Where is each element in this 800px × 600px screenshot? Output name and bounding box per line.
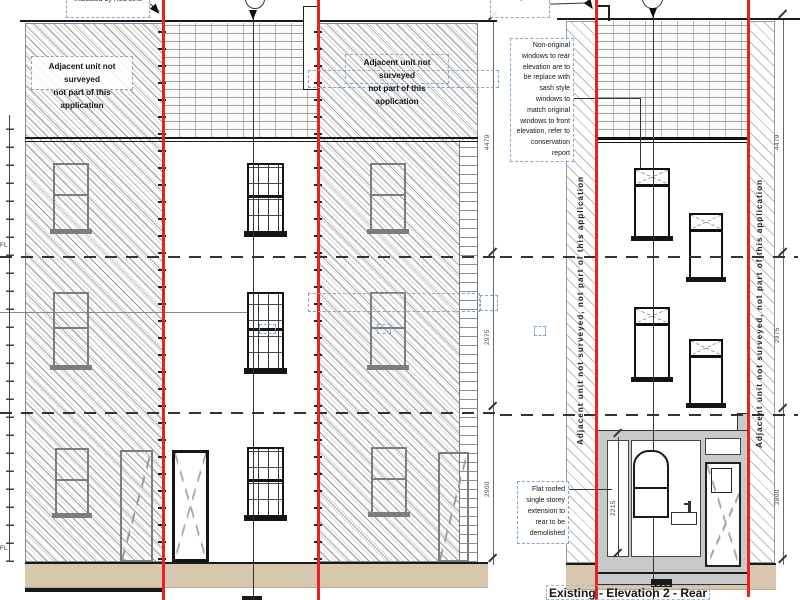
floor-level-dashed-line <box>0 412 498 414</box>
site-boundary-red-line <box>595 0 598 600</box>
floor-level-label: FL <box>0 242 8 249</box>
floor-level-dashed-line <box>500 256 798 258</box>
window-sill <box>367 365 409 370</box>
window-sill <box>367 229 409 234</box>
window-sill <box>244 368 287 374</box>
extension-door <box>705 462 741 567</box>
adjacent-unit-note: Adjacent unit not surveyednot part of th… <box>345 54 449 84</box>
level-marker-circle <box>245 0 265 9</box>
rear-window <box>689 339 723 405</box>
left-survey-tick-line <box>6 115 14 562</box>
window-top-sash <box>691 341 721 358</box>
rear-window <box>689 213 723 279</box>
adjacent-window <box>370 163 406 231</box>
dimension-label-lower: 2900 <box>484 481 491 497</box>
adjacent-note-line1: Adjacent unit not surveyed <box>364 58 431 80</box>
window-sill <box>50 229 92 234</box>
dimension-label-middle: 2975 <box>484 329 491 345</box>
front-centre-line <box>253 10 254 600</box>
window-top-sash <box>691 215 721 232</box>
adjacent-window <box>55 448 89 515</box>
front-roof-line <box>20 20 497 22</box>
front-brick-upper-band <box>163 23 318 139</box>
dimension-label-middle: 2975 <box>774 327 781 343</box>
arched-window <box>633 450 669 518</box>
adjacent-note-line2: not part of this application <box>368 84 425 106</box>
door-swing-dashes <box>707 464 739 565</box>
arched-window-rail <box>635 487 667 489</box>
extension-demolition-note: Flat roofed single storey extension to r… <box>517 481 569 544</box>
door-swing-dashes <box>440 454 467 560</box>
section-cut-bar <box>25 588 162 592</box>
site-boundary-note: Site Boundary Indicated by Red Line <box>490 0 550 18</box>
window-sill <box>244 231 287 237</box>
adjacent-unit-vertical-note: Adjacent unit not surveyed, not part of … <box>576 176 585 445</box>
rear-band-line <box>597 137 748 143</box>
revision-marker <box>534 326 546 336</box>
adjacent-door <box>120 450 153 562</box>
boundary-leader-line <box>550 2 588 4</box>
adjacent-window <box>53 163 89 231</box>
window-sill <box>686 277 726 282</box>
dimension-label-lower: 2800 <box>774 489 781 505</box>
dimension-label-upper: 4479 <box>484 134 491 150</box>
dimension-tick <box>778 9 787 18</box>
rear-dimension-line <box>783 18 784 565</box>
window-sill <box>50 365 92 370</box>
drawing-title: Existing - Elevation 2 - Rear <box>546 585 710 600</box>
extension-base-line <box>597 572 748 574</box>
revision-marker <box>377 324 391 334</box>
rear-roof-line <box>557 18 800 20</box>
front-entrance-door <box>172 450 209 562</box>
rear-brick-upper-band <box>597 21 748 139</box>
sink-counter <box>671 512 697 525</box>
extension-height-label: 2215 <box>610 500 617 516</box>
adjacent-note-line1: Adjacent unit not surveyed <box>49 62 116 84</box>
note-leader-line <box>574 98 640 99</box>
adjacent-unit-note: Adjacent unit not surveyednot part of th… <box>31 56 133 90</box>
floor-level-label: FL <box>0 545 8 552</box>
extension-transom-panel <box>705 438 741 455</box>
door-swing-dashes <box>122 452 151 560</box>
level-marker-pointer <box>249 10 257 20</box>
note-leader-line <box>640 98 641 168</box>
window-sill <box>244 515 287 521</box>
level-marker-pointer <box>649 8 657 18</box>
adjacent-unit-vertical-note: Adjacent unit not surveyed, not part of … <box>755 179 764 448</box>
parapet-step-line <box>608 5 610 21</box>
architectural-elevation-sheet: FL FL 4479 2975 2900 Site Boundary Indic… <box>0 0 800 600</box>
front-ground-band <box>25 562 488 588</box>
window-sill <box>368 512 410 517</box>
revision-marker <box>259 324 276 334</box>
door-swing-dashes <box>175 453 206 559</box>
floor-level-dashed-line <box>0 256 498 258</box>
boundary-arrowhead <box>150 4 163 17</box>
dimension-label-upper: 4479 <box>774 134 781 150</box>
front-dimension-line <box>493 20 494 565</box>
adjacent-door <box>438 452 469 562</box>
site-boundary-note: Site Boundary Indicated by Red Line <box>66 0 150 18</box>
site-boundary-red-line <box>162 0 165 600</box>
site-boundary-red-line <box>747 0 750 597</box>
extension-dimension-line <box>618 437 619 557</box>
adjacent-window <box>371 447 407 514</box>
window-sill <box>52 513 92 518</box>
window-replacement-note: Non-original windows to rear elevation a… <box>510 38 574 162</box>
note-leader-line <box>569 489 612 490</box>
revision-marker <box>480 295 498 311</box>
lintel-line <box>0 312 247 313</box>
sink-tap-spout <box>684 503 691 505</box>
adjacent-note-line2: not part of this application <box>53 88 110 110</box>
floor-level-dashed-line <box>500 414 798 416</box>
window-sill <box>686 403 726 408</box>
revision-cloud-box <box>308 293 480 312</box>
adjacent-window <box>53 292 89 367</box>
front-band-line <box>25 137 478 142</box>
